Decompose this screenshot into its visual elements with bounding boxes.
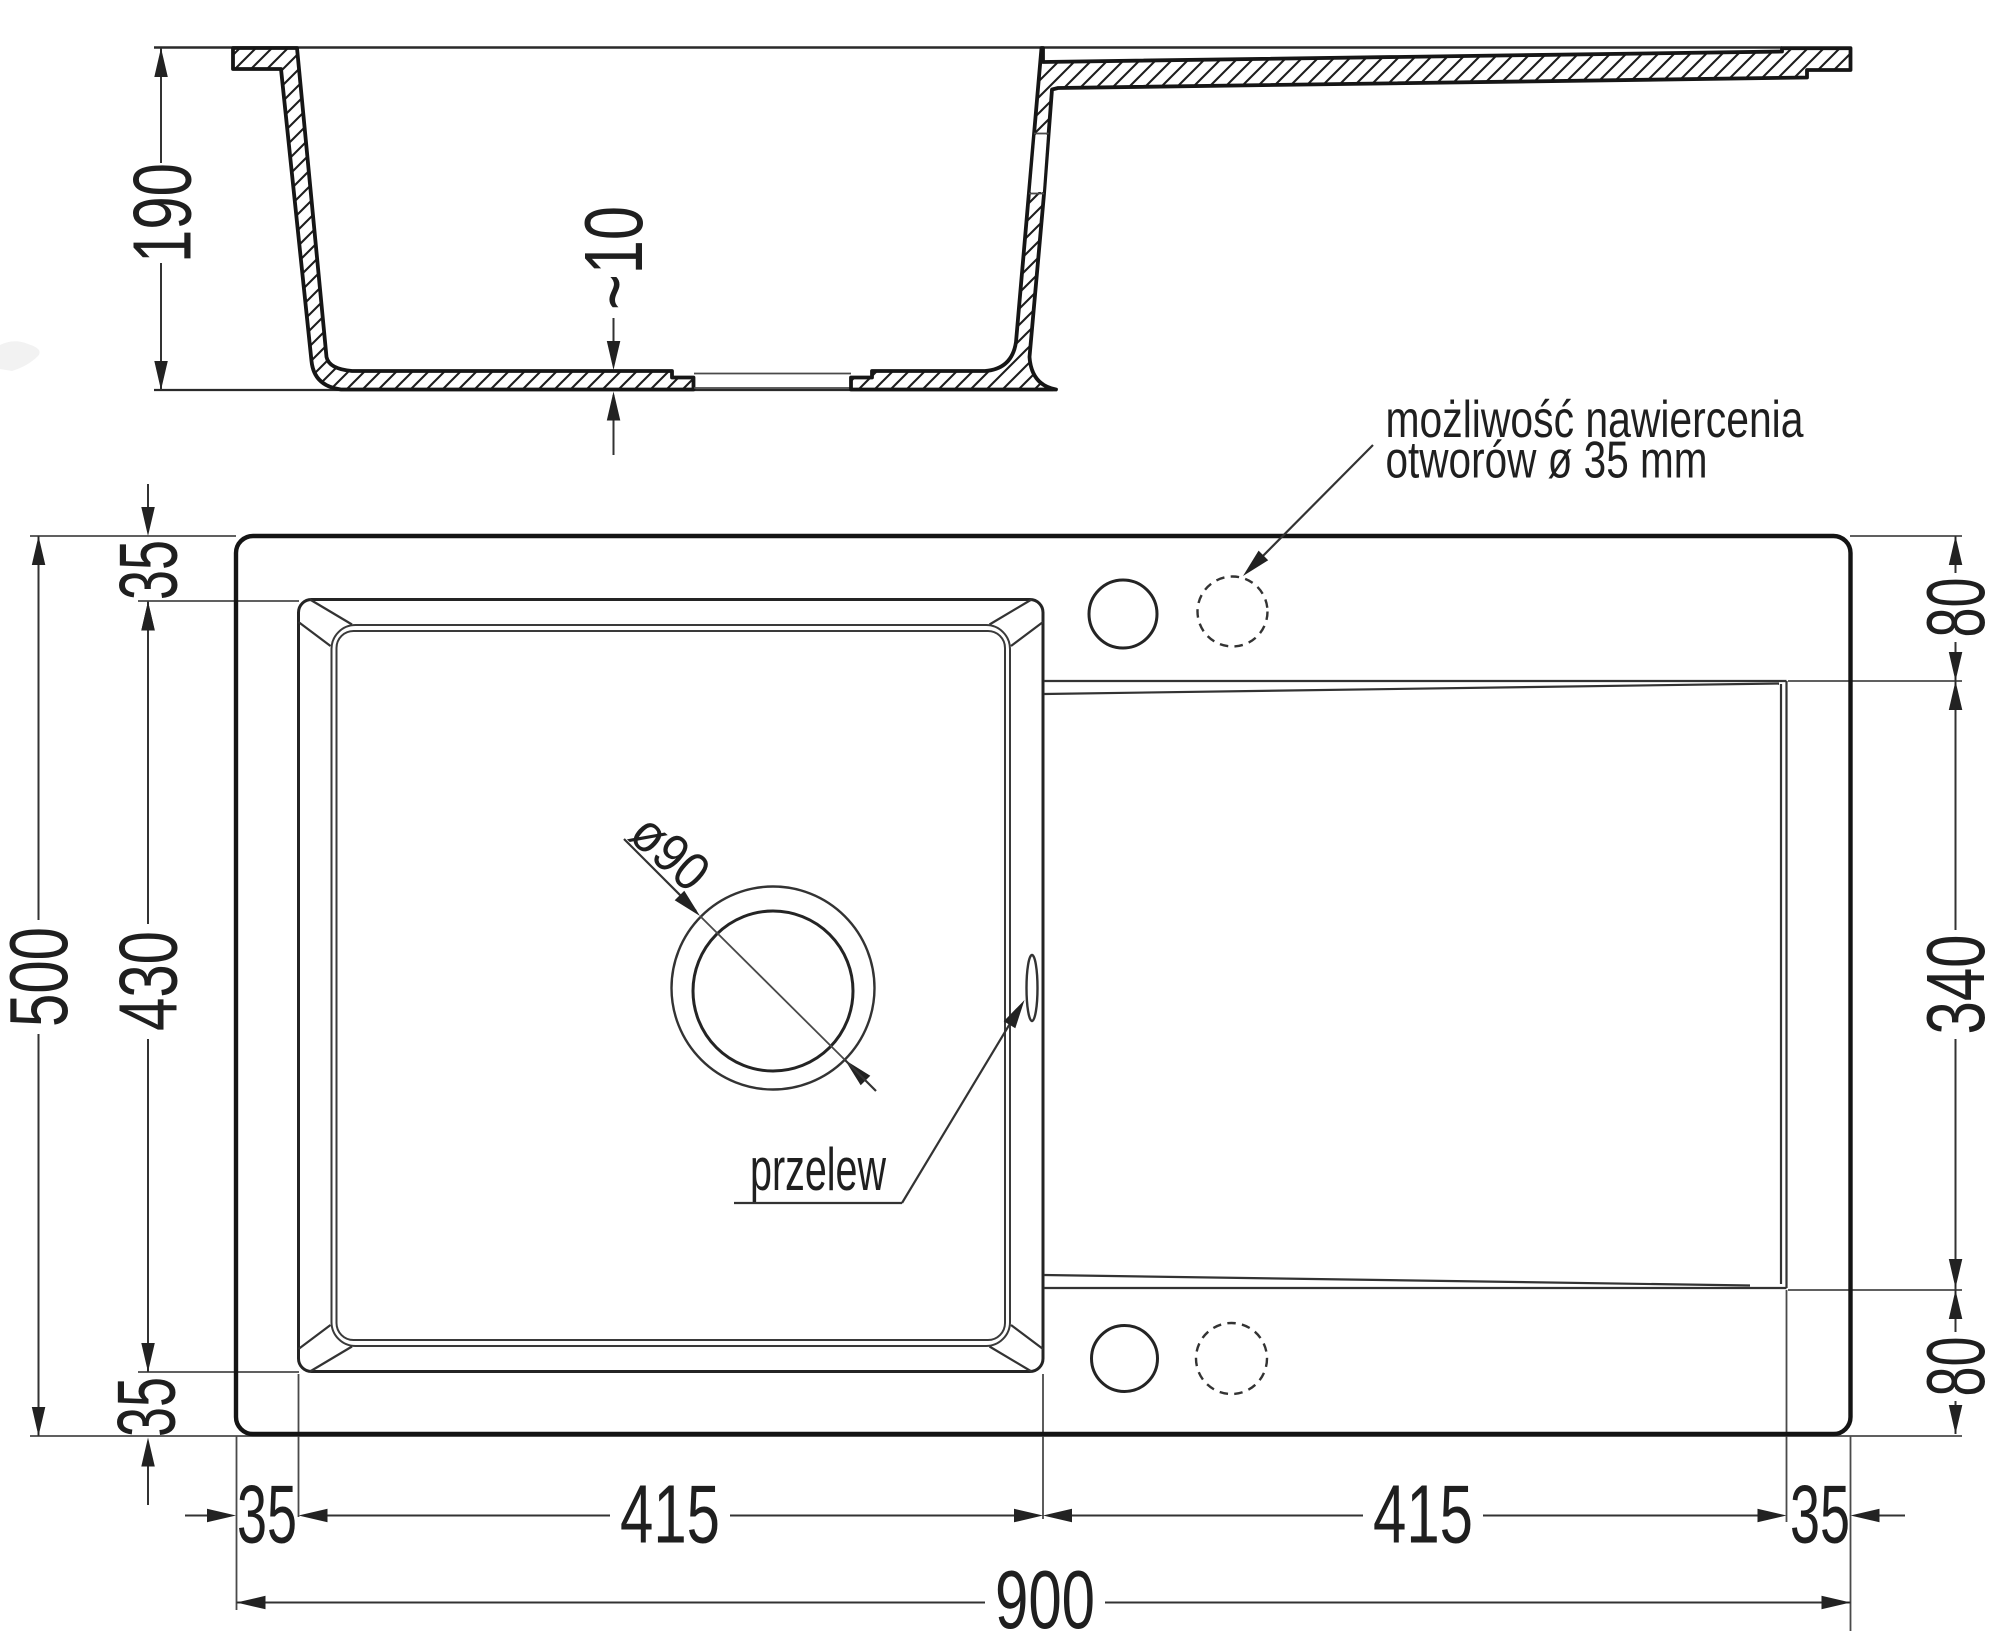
svg-text:500: 500 [0,927,85,1027]
svg-text:35: 35 [1790,1468,1850,1561]
svg-text:35: 35 [237,1468,297,1561]
svg-text:35: 35 [100,1377,193,1437]
svg-text:415: 415 [620,1468,720,1561]
svg-text:80: 80 [1909,578,2000,638]
svg-text:otworów ø 35 mm: otworów ø 35 mm [1386,432,1708,490]
svg-text:430: 430 [102,931,195,1031]
svg-text:340: 340 [1909,935,2000,1035]
svg-text:900: 900 [995,1553,1095,1636]
svg-text:190: 190 [116,163,209,263]
svg-text:przelew: przelew [750,1136,886,1203]
svg-text:~10: ~10 [567,206,660,310]
svg-text:415: 415 [1373,1468,1473,1561]
svg-text:35: 35 [102,540,195,600]
svg-text:80: 80 [1909,1337,2000,1397]
